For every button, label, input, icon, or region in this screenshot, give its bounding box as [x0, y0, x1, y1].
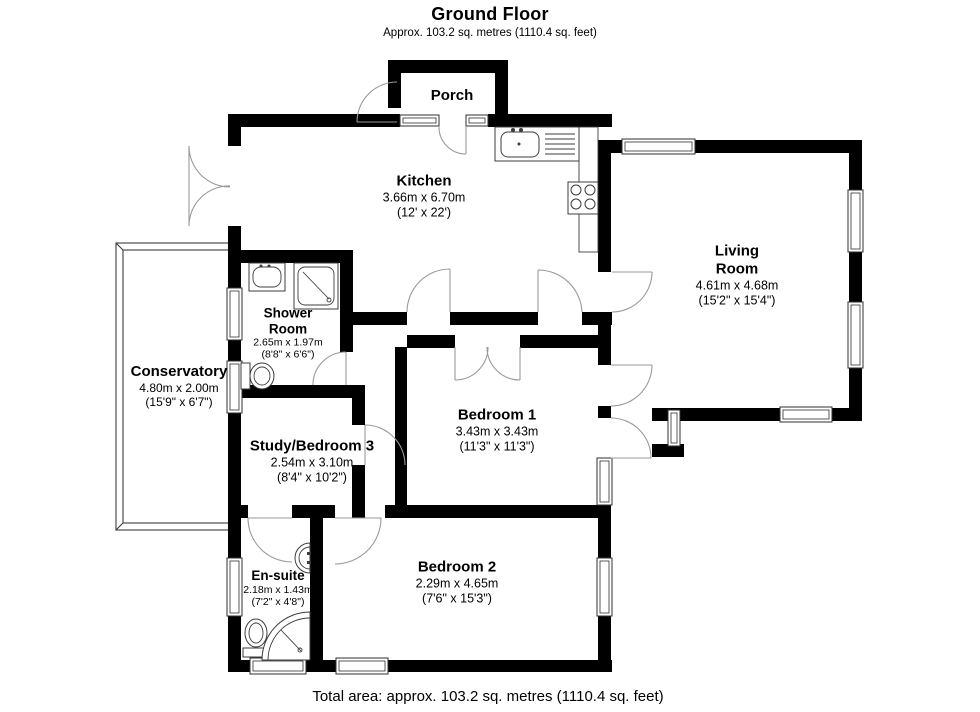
wall-porch-left	[388, 60, 401, 108]
living-room-right-window-1	[848, 190, 863, 252]
shower-room-basin-tap-2	[268, 265, 271, 268]
room-label-porch: Porch	[431, 87, 474, 105]
ensuite-corner-shower	[262, 612, 310, 660]
bedroom2-right-window	[597, 558, 612, 616]
wall-kitchen-living-divider	[598, 140, 611, 272]
wall-ensuite-top-left	[228, 505, 248, 518]
wall-hall-bottom-right	[520, 335, 608, 348]
room-name-study-bedroom3: Study/Bedroom 3	[250, 437, 374, 455]
room-metric-kitchen: 3.66m x 6.70m	[383, 190, 466, 205]
wall-hall-top-left	[352, 312, 407, 325]
room-imperial-ensuite: (7'2" x 4'8")	[243, 596, 312, 608]
wall-bedrooms-right-2	[598, 406, 611, 418]
wall-left-shower	[228, 250, 241, 288]
study-window	[227, 361, 242, 413]
wall-hall-top-mid	[450, 312, 538, 325]
shower-room-window	[227, 288, 242, 340]
hall-kitchen-door-right-arc	[538, 270, 582, 312]
porch-inner-door-arc	[439, 127, 466, 154]
ensuite-side-window	[227, 558, 242, 616]
bedroom1-double-door-left-arc	[455, 347, 488, 380]
room-name-ensuite: En-suite	[243, 568, 312, 584]
room-label-ensuite: En-suite 2.18m x 1.43m (7'2" x 4'8")	[243, 568, 312, 608]
room-metric-bedroom1: 3.43m x 3.43m	[456, 424, 539, 439]
wall-left-mid	[228, 340, 241, 361]
kitchen-tap-2	[519, 128, 523, 132]
stove-burner-2	[585, 185, 595, 195]
stove-burner-1	[571, 185, 581, 195]
room-label-conservatory: Conservatory 4.80m x 2.00m (15'9" x 6'7"…	[131, 363, 228, 409]
shower-room-toilet-cistern	[241, 363, 250, 389]
living-room-right-window-2	[848, 302, 863, 368]
kitchen-patio-door-top-arc	[189, 146, 230, 187]
stove-burner-4	[585, 199, 595, 209]
wall-hall-bottom-left	[407, 335, 455, 348]
room-label-bedroom1: Bedroom 1 3.43m x 3.43m (11'3" x 11'3")	[456, 406, 539, 454]
wall-left-study	[228, 413, 241, 508]
total-area-text: Total area: approx. 103.2 sq. metres (11…	[312, 688, 663, 705]
wall-bottom-mid	[306, 660, 336, 672]
wall-bedrooms-right-4	[598, 616, 611, 672]
wall-bottom-left	[228, 660, 250, 672]
wall-porch-top	[388, 60, 508, 73]
room-metric-living-room: 4.61m x 4.68m	[696, 278, 779, 293]
room-name-bedroom2: Bedroom 2	[416, 558, 499, 576]
wall-study-right-upper	[352, 385, 365, 425]
room-metric-shower-room: 2.65m x 1.97m	[253, 336, 322, 348]
room-imperial-bedroom2: (7'6" x 15'3")	[416, 591, 499, 606]
wall-bottom-right	[388, 660, 612, 672]
living-room-bottom-window	[780, 407, 832, 422]
bedroom2-door-arc	[335, 518, 381, 564]
room-imperial-conservatory: (15'9" x 6'7")	[131, 395, 228, 409]
room-metric-ensuite: 2.18m x 1.43m	[243, 584, 312, 596]
wall-living-top-left	[598, 140, 622, 153]
room-imperial-kitchen: (12' x 22')	[383, 205, 466, 220]
floorplan-canvas: Ground Floor Approx. 103.2 sq. metres (1…	[0, 0, 980, 712]
kitchen-tap-1	[511, 128, 515, 132]
wall-bedrooms-right-3	[598, 505, 611, 558]
room-imperial-bedroom1: (11'3" x 11'3")	[456, 439, 539, 454]
room-label-shower-room: Shower Room 2.65m x 1.97m (8'8" x 6'6")	[253, 305, 322, 360]
stove-burner-3	[571, 199, 581, 209]
ensuite-basin-tap-2	[307, 561, 311, 564]
room-name-kitchen: Kitchen	[383, 172, 466, 190]
wall-living-right-1	[849, 140, 862, 190]
room-name-shower-room: Shower Room	[259, 305, 317, 336]
kitchen-patio-door-bottom-arc	[189, 146, 230, 226]
room-label-bedroom2: Bedroom 2 2.29m x 4.65m (7'6" x 15'3")	[416, 558, 499, 606]
wall-kitchen-left-upper	[228, 114, 241, 146]
wall-shower-right	[340, 250, 353, 352]
room-imperial-shower-room: (8'8" x 6'6")	[253, 349, 322, 361]
room-name-porch: Porch	[431, 87, 474, 105]
rear-lobby-window	[668, 410, 680, 446]
wall-living-top-right	[695, 140, 862, 153]
rear-door-arc	[611, 418, 651, 458]
wall-bedroom1-bottom	[385, 505, 608, 518]
conservatory-corner-miters	[116, 243, 123, 530]
ensuite-basin-tap-1	[307, 552, 311, 555]
room-label-living-room: Living Room 4.61m x 4.68m (15'2" x 15'4"…	[696, 242, 779, 308]
wall-shower-top	[228, 250, 352, 263]
bedroom2-bottom-window	[336, 658, 388, 674]
wall-kitchen-top-right	[488, 114, 612, 127]
living-room-door-arc	[611, 365, 652, 406]
room-name-conservatory: Conservatory	[131, 363, 228, 381]
room-name-living-room: Living Room	[707, 242, 767, 278]
kitchen-sink-drain	[518, 143, 521, 146]
kitchen-living-door-arc	[612, 272, 652, 312]
wall-bedrooms-right-1	[598, 312, 611, 365]
room-label-study-bedroom3: Study/Bedroom 3 2.54m x 3.10m (8'4" x 10…	[250, 437, 374, 485]
room-label-kitchen: Kitchen 3.66m x 6.70m (12' x 22')	[383, 172, 466, 220]
wall-kitchen-top-left	[228, 114, 400, 127]
bedroom1-double-door-right-arc	[487, 347, 520, 380]
wall-living-bottom-right	[832, 408, 862, 421]
hall-kitchen-door-left-arc	[407, 269, 450, 312]
wall-living-right-2	[849, 252, 862, 302]
room-imperial-living-room: (15'2" x 15'4")	[696, 293, 779, 308]
bedroom1-right-window	[597, 458, 612, 505]
porch-sidelight-left-window	[400, 115, 439, 126]
ensuite-door-arc	[248, 518, 292, 562]
room-imperial-study-bedroom3: (8'4" x 10'2")	[250, 470, 374, 485]
wall-bedroom1-left	[395, 347, 407, 505]
wall-kitchen-left-lower	[228, 226, 241, 252]
room-metric-conservatory: 4.80m x 2.00m	[131, 381, 228, 395]
room-name-bedroom1: Bedroom 1	[456, 406, 539, 424]
room-metric-study-bedroom3: 2.54m x 3.10m	[250, 455, 374, 470]
room-metric-bedroom2: 2.29m x 4.65m	[416, 576, 499, 591]
shower-room-basin-tap-1	[260, 265, 263, 268]
living-room-top-window	[622, 139, 695, 154]
